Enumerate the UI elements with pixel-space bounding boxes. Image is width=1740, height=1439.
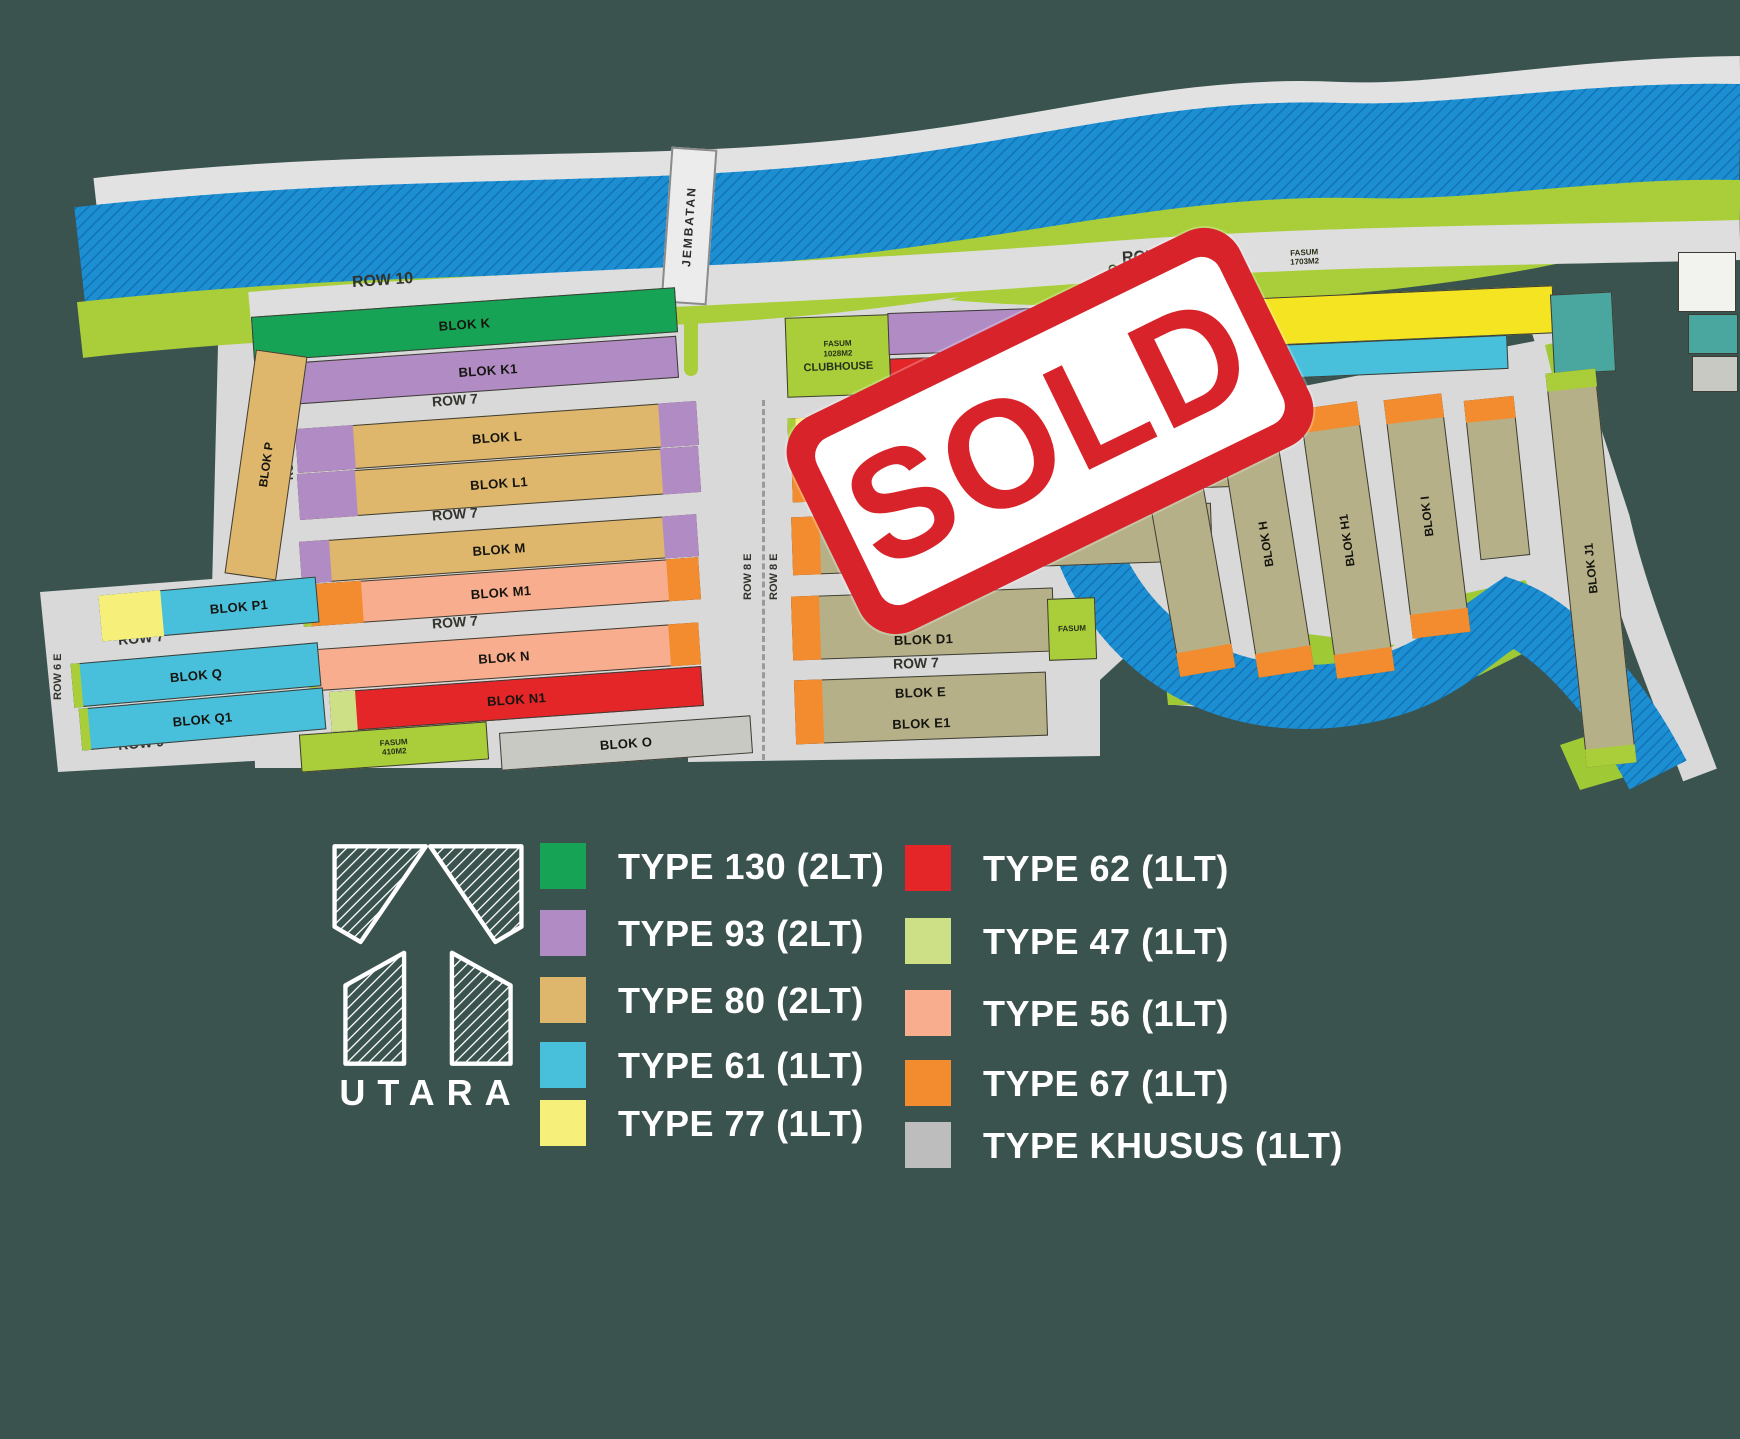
legend-swatch-type80	[540, 977, 586, 1023]
blok-l-label: BLOK L	[471, 428, 522, 446]
legend-swatch-type61	[540, 1042, 586, 1088]
blok-j1-label: BLOK J1	[1581, 542, 1600, 594]
legend-label-type62: TYPE 62 (1LT)	[983, 848, 1229, 890]
blok-q1-label: BLOK Q1	[172, 709, 233, 729]
blok-m1-label: BLOK M1	[470, 582, 532, 601]
bridge-label: JEMBATAN	[679, 185, 699, 267]
fasum-e-label: FASUM	[1058, 624, 1086, 634]
legend-label-type80: TYPE 80 (2LT)	[618, 980, 864, 1022]
blok-h-label: BLOK H	[1255, 520, 1276, 568]
legend-swatch-khusus	[905, 1122, 951, 1168]
blok-e-label: BLOK E	[895, 684, 946, 701]
legend-label-type47: TYPE 47 (1LT)	[983, 921, 1229, 963]
fasum-o-line2: 410M2	[380, 746, 409, 757]
row8-label-2: ROW 8 E	[768, 510, 780, 600]
row6-label-lower: ROW 6 E	[52, 610, 64, 700]
clubhouse-fasum-line2: 1028M2	[823, 348, 852, 358]
legend-swatch-type47	[905, 918, 951, 964]
legend-label-type67: TYPE 67 (1LT)	[983, 1063, 1229, 1105]
compass-label: UTARA	[327, 1072, 523, 1114]
clubhouse-label: CLUBHOUSE	[803, 359, 873, 373]
blok-h1-label: BLOK H1	[1336, 513, 1357, 567]
legend-swatch-type130	[540, 843, 586, 889]
garden-park-fasum: FASUM 1703M2	[1290, 247, 1320, 267]
row8-dashed-line	[762, 400, 765, 760]
blok-n1-label: BLOK N1	[486, 689, 546, 708]
legend-swatch-type62	[905, 845, 951, 891]
fasum-o-label: FASUM 410M2	[379, 737, 408, 757]
corner-gray-block	[1692, 356, 1738, 392]
blok-o-label: BLOK O	[599, 734, 652, 753]
legend-swatch-type56	[905, 990, 951, 1036]
siteplan-poster: JEMBATAN GARDEN PARK FASUM 1703M2 BLOK K…	[0, 0, 1740, 1439]
blok-e-strip: BLOK E BLOK E1	[794, 672, 1048, 745]
legend-label-type77: TYPE 77 (1LT)	[618, 1103, 864, 1145]
blok-n-label: BLOK N	[478, 648, 531, 667]
blok-l1-label: BLOK L1	[470, 474, 529, 493]
blok-q-label: BLOK Q	[169, 665, 222, 685]
fasum-e-area: FASUM	[1047, 597, 1097, 661]
blok-k-label: BLOK K	[438, 315, 491, 334]
legend-label-type93: TYPE 93 (2LT)	[618, 913, 864, 955]
legend-label-type61: TYPE 61 (1LT)	[618, 1045, 864, 1087]
blok-m-label: BLOK M	[472, 540, 526, 559]
legend-label-khusus: TYPE KHUSUS (1LT)	[983, 1125, 1343, 1167]
teal-block	[1550, 291, 1616, 374]
corner-teal-block	[1688, 314, 1738, 354]
legend-label-type56: TYPE 56 (1LT)	[983, 993, 1229, 1035]
blok-k1-label: BLOK K1	[458, 360, 518, 379]
north-arrow-icon	[330, 842, 526, 1068]
blok-p-label: BLOK P	[256, 442, 276, 489]
road-verge	[684, 312, 698, 376]
clubhouse-fasum-line1: FASUM	[823, 339, 852, 349]
legend-swatch-type67	[905, 1060, 951, 1106]
corner-lots	[1678, 252, 1736, 312]
clubhouse-fasum: FASUM 1028M2	[823, 339, 853, 358]
blok-i-label: BLOK I	[1418, 495, 1437, 537]
legend-swatch-type77	[540, 1100, 586, 1146]
blok-p1-label: BLOK P1	[209, 596, 269, 616]
garden-park-fasum-line2: 1703M2	[1290, 256, 1319, 267]
row8-label-1: ROW 8 E	[742, 510, 754, 600]
legend-swatch-type93	[540, 910, 586, 956]
blok-e1-label: BLOK E1	[892, 715, 951, 732]
legend-label-type130: TYPE 130 (2LT)	[618, 846, 884, 888]
